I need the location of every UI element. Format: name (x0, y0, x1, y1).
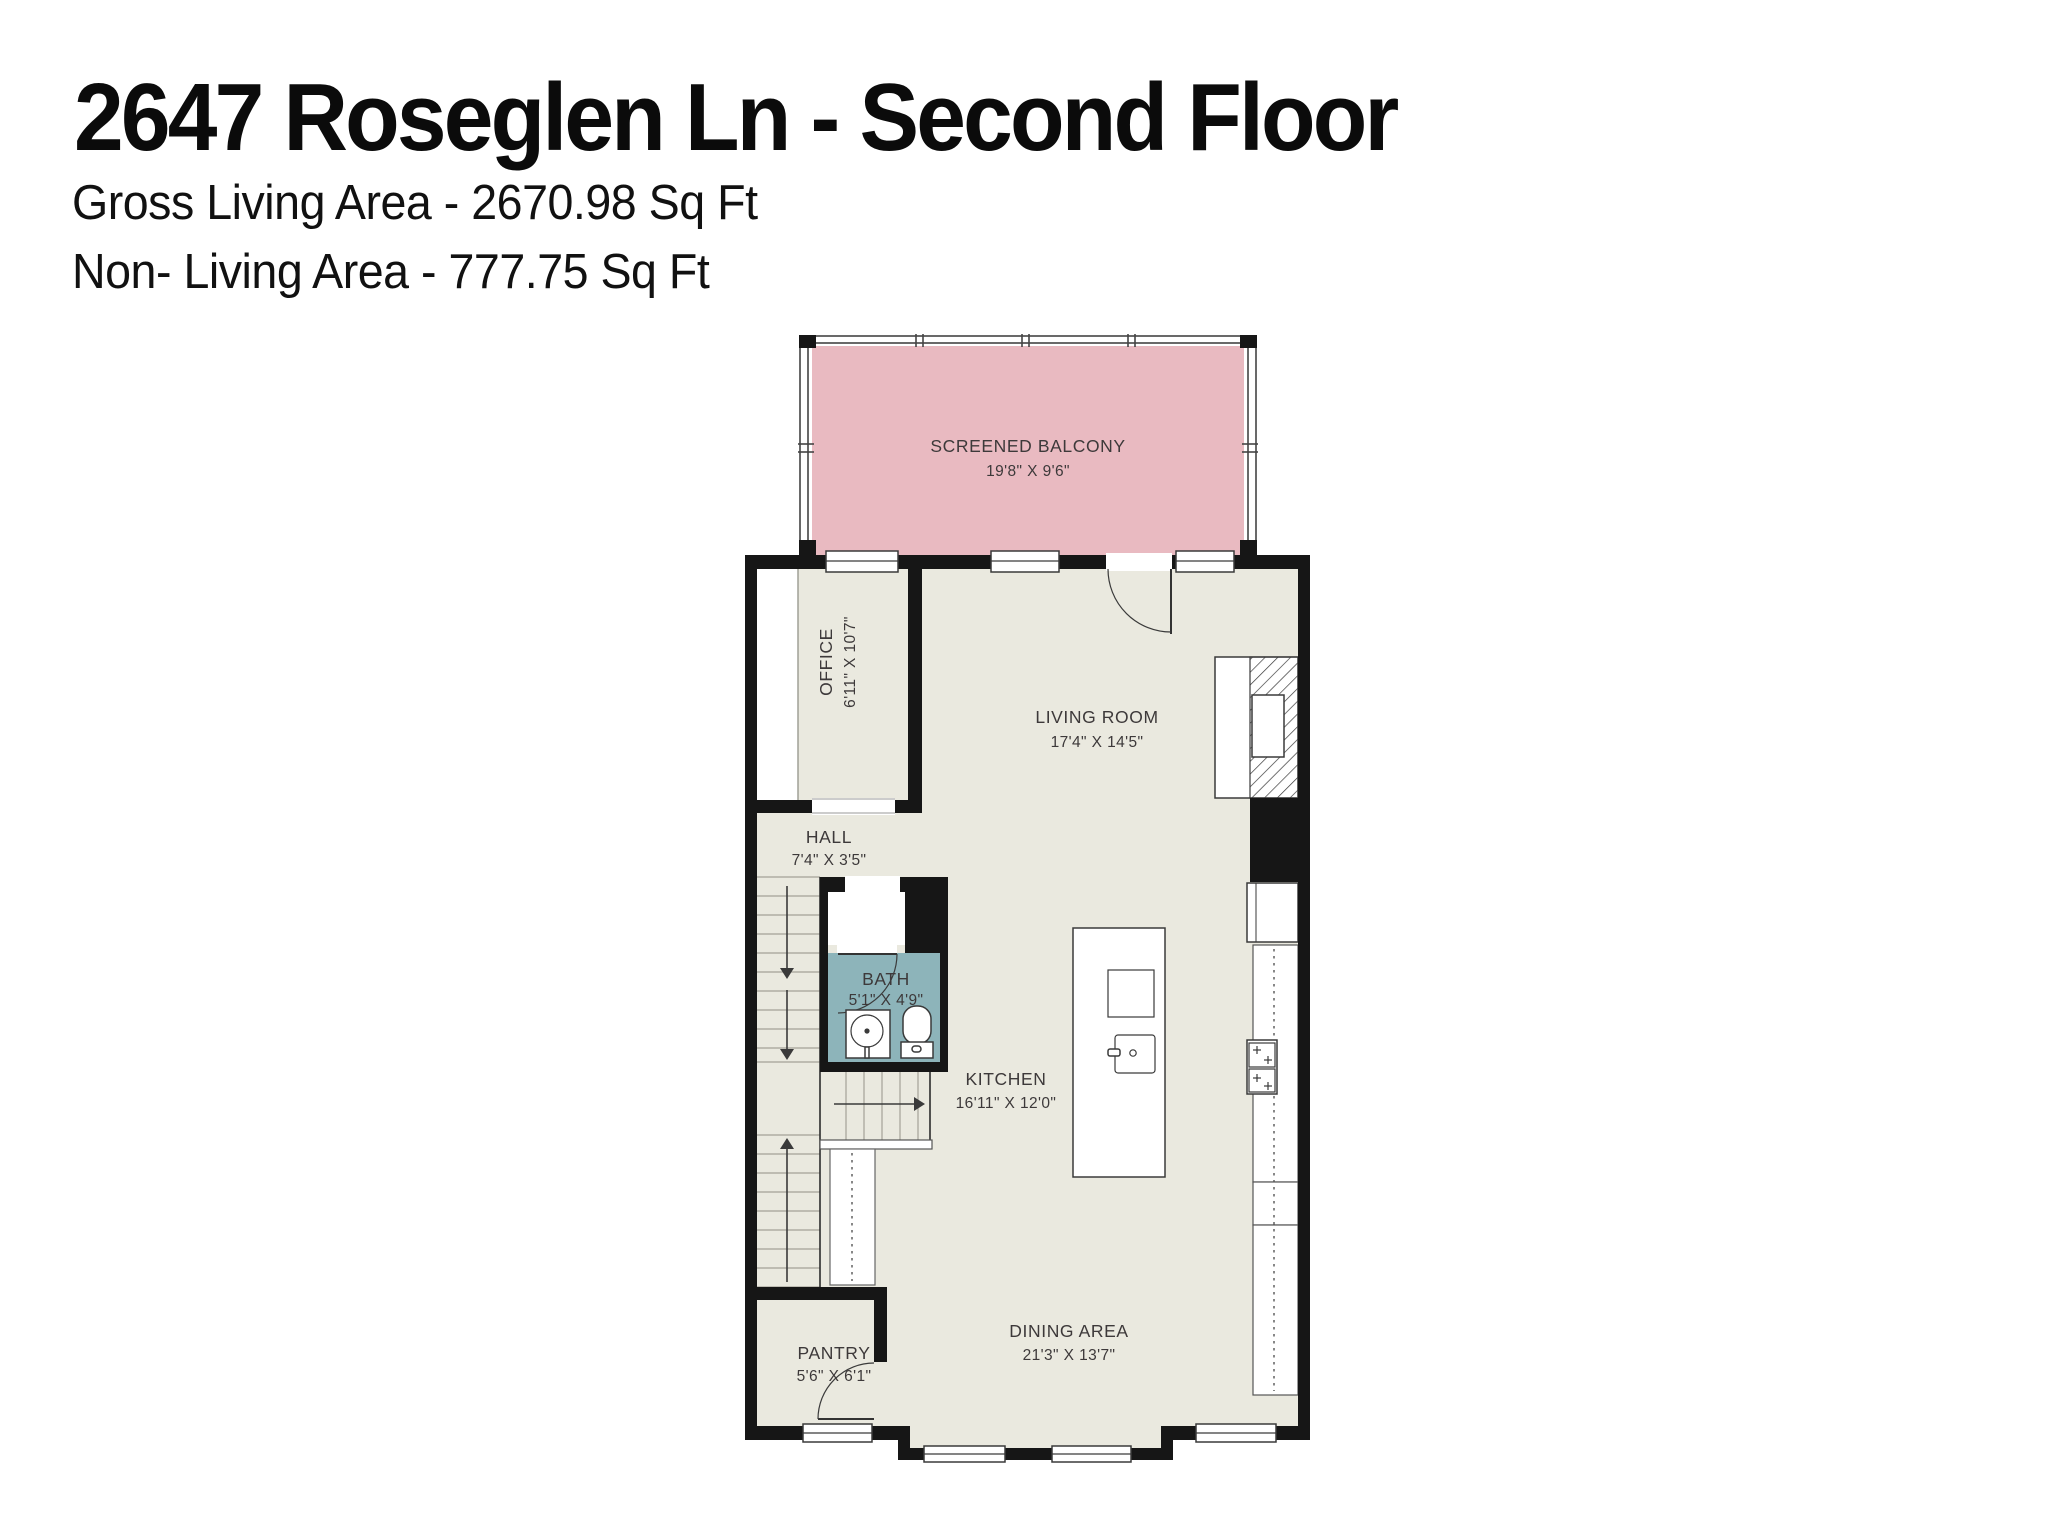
svg-text:17'4" X 14'5": 17'4" X 14'5" (1051, 734, 1144, 751)
toilet (901, 1006, 933, 1058)
living-room-window-2 (1176, 551, 1234, 572)
bath-left-wall (820, 892, 828, 1072)
bath-door-opening (837, 945, 897, 953)
svg-text:SCREENED BALCONY: SCREENED BALCONY (930, 436, 1125, 456)
svg-text:21'3" X 13'7": 21'3" X 13'7" (1023, 1347, 1116, 1364)
office-right-wall (908, 555, 922, 813)
svg-text:KITCHEN: KITCHEN (965, 1069, 1046, 1089)
bath-corner-wall (905, 892, 948, 953)
office-door-opening (812, 798, 895, 815)
dining-window (1196, 1424, 1276, 1442)
pantry-window (803, 1424, 872, 1442)
stair-landing-bar (820, 1140, 932, 1149)
bath-nook-floor (828, 892, 905, 945)
svg-text:OFFICE: OFFICE (816, 628, 836, 696)
office-window (826, 551, 898, 572)
bath-sink (846, 1010, 890, 1058)
svg-text:BATH: BATH (862, 969, 910, 989)
svg-text:PANTRY: PANTRY (798, 1343, 871, 1363)
office-closet-strip (757, 569, 798, 800)
refrigerator (1247, 883, 1298, 942)
pantry-right-wall (874, 1300, 887, 1362)
firebox (1252, 695, 1284, 757)
right-wall (1298, 555, 1310, 1440)
left-wall (745, 555, 757, 1440)
chimney-wall (1250, 798, 1298, 882)
svg-text:5'1" X 4'9": 5'1" X 4'9" (849, 992, 924, 1009)
living-room-window-1 (991, 551, 1059, 572)
bath-nook-opening (845, 876, 900, 893)
floor-plan-drawing: SCREENED BALCONY 19'8" X 9'6" OFFICE 6'1… (0, 0, 2048, 1536)
svg-text:7'4" X 3'5": 7'4" X 3'5" (792, 852, 867, 869)
svg-text:DINING AREA: DINING AREA (1009, 1321, 1128, 1341)
pantry-top-wall (745, 1287, 887, 1300)
bath-right-wall (940, 953, 948, 1072)
counter-right (1247, 945, 1298, 1395)
svg-text:6'11" X 10'7": 6'11" X 10'7" (842, 616, 859, 708)
bay-window-2 (1052, 1446, 1131, 1462)
floor-plan-page: 2647 Roseglen Ln - Second Floor Gross Li… (0, 0, 2048, 1536)
range-cooktop (1247, 1040, 1277, 1094)
kitchen-island (1073, 928, 1165, 1177)
bay-window-1 (924, 1446, 1005, 1462)
counter-left (830, 1149, 875, 1285)
svg-text:HALL: HALL (806, 827, 852, 847)
svg-text:19'8" X 9'6": 19'8" X 9'6" (986, 463, 1070, 480)
svg-text:LIVING ROOM: LIVING ROOM (1035, 707, 1158, 727)
svg-text:16'11" X 12'0": 16'11" X 12'0" (956, 1095, 1057, 1112)
bath-bottom-wall (820, 1062, 948, 1072)
svg-text:5'6" X 6'1": 5'6" X 6'1" (797, 1368, 872, 1385)
